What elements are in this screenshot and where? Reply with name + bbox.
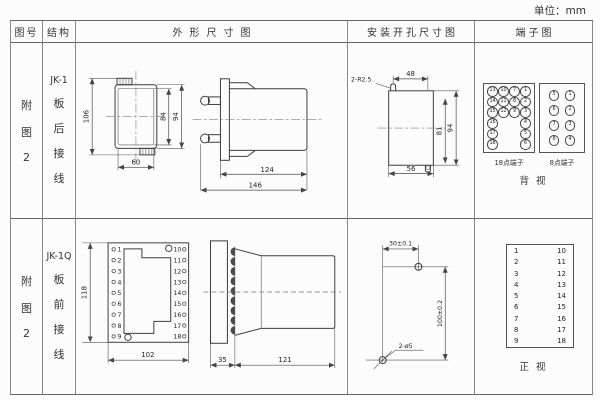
jk1q-terminal-bumps: [231, 247, 235, 334]
structure-line: 接: [54, 321, 65, 337]
dim-bottom-width: 56: [407, 165, 416, 173]
jk1q-front-view: 123456789 101112131415161718 118 102: [81, 243, 189, 363]
terminal-point-18: 18: [487, 139, 498, 150]
terminal-point-8: 8: [549, 135, 560, 146]
header-fig-no: 图号: [11, 21, 43, 43]
terminal-point-3: 3: [520, 107, 531, 118]
terminal-point-10: 10: [498, 86, 509, 97]
svg-text:13: 13: [173, 279, 181, 286]
row1-terminal-cell: 131071141182151293164175186 51627384 18点…: [475, 43, 593, 219]
terminal-point-blank: [499, 130, 508, 139]
front-view-label: 正 视: [475, 359, 592, 373]
row2-outline-cell: 123456789 101112131415161718 118 102: [76, 219, 348, 395]
dim-side-body: 121: [278, 356, 291, 364]
terminal-point-16: 16: [487, 118, 498, 129]
row2-terminal-cell: 123456789 101112131415161718 正 视: [475, 219, 593, 395]
svg-text:1: 1: [118, 247, 122, 254]
row1-mounting-cell: 48 2-R2.5 81 94 56: [348, 43, 475, 219]
terminal-col-right: 101112131415161718: [557, 247, 566, 345]
dim-side-flange: 35: [218, 356, 227, 364]
dim-front-height: 118: [81, 286, 89, 299]
fig-no-line: 图: [21, 124, 32, 140]
terminal-point-4: 4: [520, 118, 531, 129]
terminal-point-7: 7: [549, 120, 560, 131]
svg-text:6: 6: [118, 301, 122, 308]
jk1q-left-terminals: 123456789: [112, 247, 122, 341]
dim-front-inner-height: 84: [159, 112, 167, 121]
terminal-num-2: 2: [514, 258, 518, 266]
row2-mounting-cell: 30±0.1 100±0.2 2-ø5: [348, 219, 475, 395]
terminal-18-label: 18点端子: [483, 157, 535, 167]
terminal-point-15: 15: [487, 107, 498, 118]
jk1q-side-view: 35 121: [204, 241, 341, 368]
jk1-side-view: 124 146: [193, 79, 323, 190]
row1-fig-no-cell: 附 图 2: [11, 43, 43, 219]
header-mounting: 安装开孔尺寸图: [348, 21, 475, 43]
terminal-point-2: 2: [520, 97, 531, 108]
structure-line: 板: [54, 95, 65, 111]
terminal-point-13: 13: [487, 86, 498, 97]
dim-hole-v-spacing: 100±0.2: [437, 300, 444, 327]
terminal-point-17: 17: [487, 129, 498, 140]
dim-side-body: 124: [261, 166, 275, 174]
terminal-num-7: 7: [514, 315, 518, 323]
row1-outline-cell: 106 84 94 60: [76, 43, 348, 219]
terminal-grid-18: 131071141182151293164175186: [483, 83, 535, 153]
terminal-num-15: 15: [557, 303, 566, 311]
row2-fig-no-cell: 附 图 2: [11, 219, 43, 395]
dim-hole-h-spacing: 30±0.1: [389, 240, 412, 247]
terminal-point-9: 9: [509, 107, 520, 118]
terminal-point-blank: [510, 130, 519, 139]
structure-model: JK-1Q: [47, 251, 72, 262]
dim-side-total: 146: [249, 182, 262, 190]
terminal-point-2: 2: [565, 105, 576, 116]
terminal-num-13: 13: [557, 281, 566, 289]
jk1-front-view: 106 84 94 60: [83, 71, 185, 170]
svg-text:12: 12: [173, 268, 181, 275]
terminal-8-label: 8点端子: [539, 157, 585, 167]
terminal-point-blank: [510, 119, 519, 128]
terminal-point-blank: [499, 119, 508, 128]
jk1-outline-drawing: 106 84 94 60: [76, 43, 347, 218]
svg-text:5: 5: [118, 290, 122, 297]
fig-no-line: 2: [23, 327, 30, 340]
svg-text:16: 16: [173, 312, 181, 319]
terminal-num-10: 10: [557, 247, 566, 255]
rear-view-label: 背 视: [475, 173, 592, 187]
dim-front-outer-height: 94: [172, 112, 180, 121]
terminal-point-6: 6: [520, 139, 531, 150]
terminal-point-3: 3: [565, 120, 576, 131]
terminal-num-6: 6: [514, 303, 518, 311]
svg-text:17: 17: [173, 323, 181, 330]
structure-line: 前: [54, 296, 65, 312]
dim-top-width: 48: [406, 70, 415, 78]
dim-inner-height: 81: [436, 127, 444, 136]
structure-line: 后: [54, 120, 65, 136]
svg-text:18: 18: [173, 334, 181, 341]
fig-no-line: 附: [21, 273, 32, 289]
structure-line: 线: [54, 346, 65, 362]
dim-outer-height: 94: [447, 123, 455, 132]
header-terminal: 端子图: [475, 21, 593, 43]
svg-text:8: 8: [118, 323, 122, 330]
spec-sheet-page: 单位：mm 图号 结构 外形尺寸图 安装开孔尺寸图 端子图 附 图 2 JK-1…: [0, 0, 600, 400]
terminal-num-12: 12: [557, 270, 566, 278]
row2-structure-cell: JK-1Q 板 前 接 线: [43, 219, 76, 395]
fig-no-line: 图: [21, 300, 32, 316]
terminal-point-12: 12: [498, 107, 509, 118]
structure-line: 线: [54, 170, 65, 186]
terminal-point-8: 8: [509, 97, 520, 108]
terminal-num-4: 4: [514, 281, 518, 289]
svg-text:4: 4: [118, 279, 122, 286]
terminal-num-9: 9: [514, 337, 518, 345]
terminal-num-8: 8: [514, 326, 518, 334]
jk1q-mounting-drawing: 30±0.1 100±0.2 2-ø5: [348, 219, 474, 394]
jk1-mounting-drawing: 48 2-R2.5 81 94 56: [348, 43, 474, 218]
structure-line: 接: [54, 145, 65, 161]
terminal-col-left: 123456789: [514, 247, 518, 345]
terminal-num-14: 14: [557, 292, 566, 300]
terminal-grid-8: 51627384: [539, 83, 585, 153]
structure-line: 板: [54, 271, 65, 287]
unit-label: 单位：mm: [534, 3, 586, 18]
jk1q-outline-drawing: 123456789 101112131415161718 118 102: [76, 219, 347, 394]
header-outline: 外形尺寸图: [76, 21, 348, 43]
terminal-number-box: 123456789 101112131415161718: [506, 244, 574, 348]
terminal-point-14: 14: [487, 97, 498, 108]
terminal-point-6: 6: [549, 105, 560, 116]
terminal-num-3: 3: [514, 270, 518, 278]
spec-table: 图号 结构 外形尺寸图 安装开孔尺寸图 端子图 附 图 2 JK-1 板 后 接…: [10, 20, 593, 395]
fig-no-line: 附: [21, 97, 32, 113]
svg-text:2: 2: [118, 258, 122, 265]
terminal-point-11: 11: [498, 97, 509, 108]
dim-front-height: 106: [83, 110, 91, 123]
terminal-point-5: 5: [549, 90, 560, 101]
terminal-num-1: 1: [514, 247, 518, 255]
terminal-num-5: 5: [514, 292, 518, 300]
structure-model: JK-1: [50, 75, 68, 86]
terminal-point-1: 1: [520, 86, 531, 97]
terminal-num-17: 17: [557, 326, 566, 334]
dim-front-width: 60: [132, 158, 141, 166]
notch-radius-label: 2-R2.5: [351, 76, 372, 83]
terminal-point-4: 4: [565, 135, 576, 146]
svg-text:7: 7: [118, 312, 122, 319]
svg-text:14: 14: [173, 290, 181, 297]
terminal-num-18: 18: [557, 337, 566, 345]
jk1q-right-terminals: 101112131415161718: [173, 247, 186, 341]
terminal-num-11: 11: [557, 258, 566, 266]
terminal-point-1: 1: [565, 90, 576, 101]
row1-structure-cell: JK-1 板 后 接 线: [43, 43, 76, 219]
terminal-num-16: 16: [557, 315, 566, 323]
svg-text:9: 9: [118, 334, 122, 341]
terminal-point-blank: [510, 140, 519, 149]
terminal-point-5: 5: [520, 129, 531, 140]
dim-front-width: 102: [141, 351, 154, 359]
fig-no-line: 2: [23, 151, 30, 164]
header-structure: 结构: [43, 21, 76, 43]
svg-text:10: 10: [173, 247, 181, 254]
hole-diameter-label: 2-ø5: [399, 343, 413, 350]
svg-text:15: 15: [173, 301, 181, 308]
svg-text:3: 3: [118, 268, 122, 275]
terminal-point-blank: [499, 140, 508, 149]
svg-text:11: 11: [173, 258, 181, 265]
terminal-point-7: 7: [509, 86, 520, 97]
